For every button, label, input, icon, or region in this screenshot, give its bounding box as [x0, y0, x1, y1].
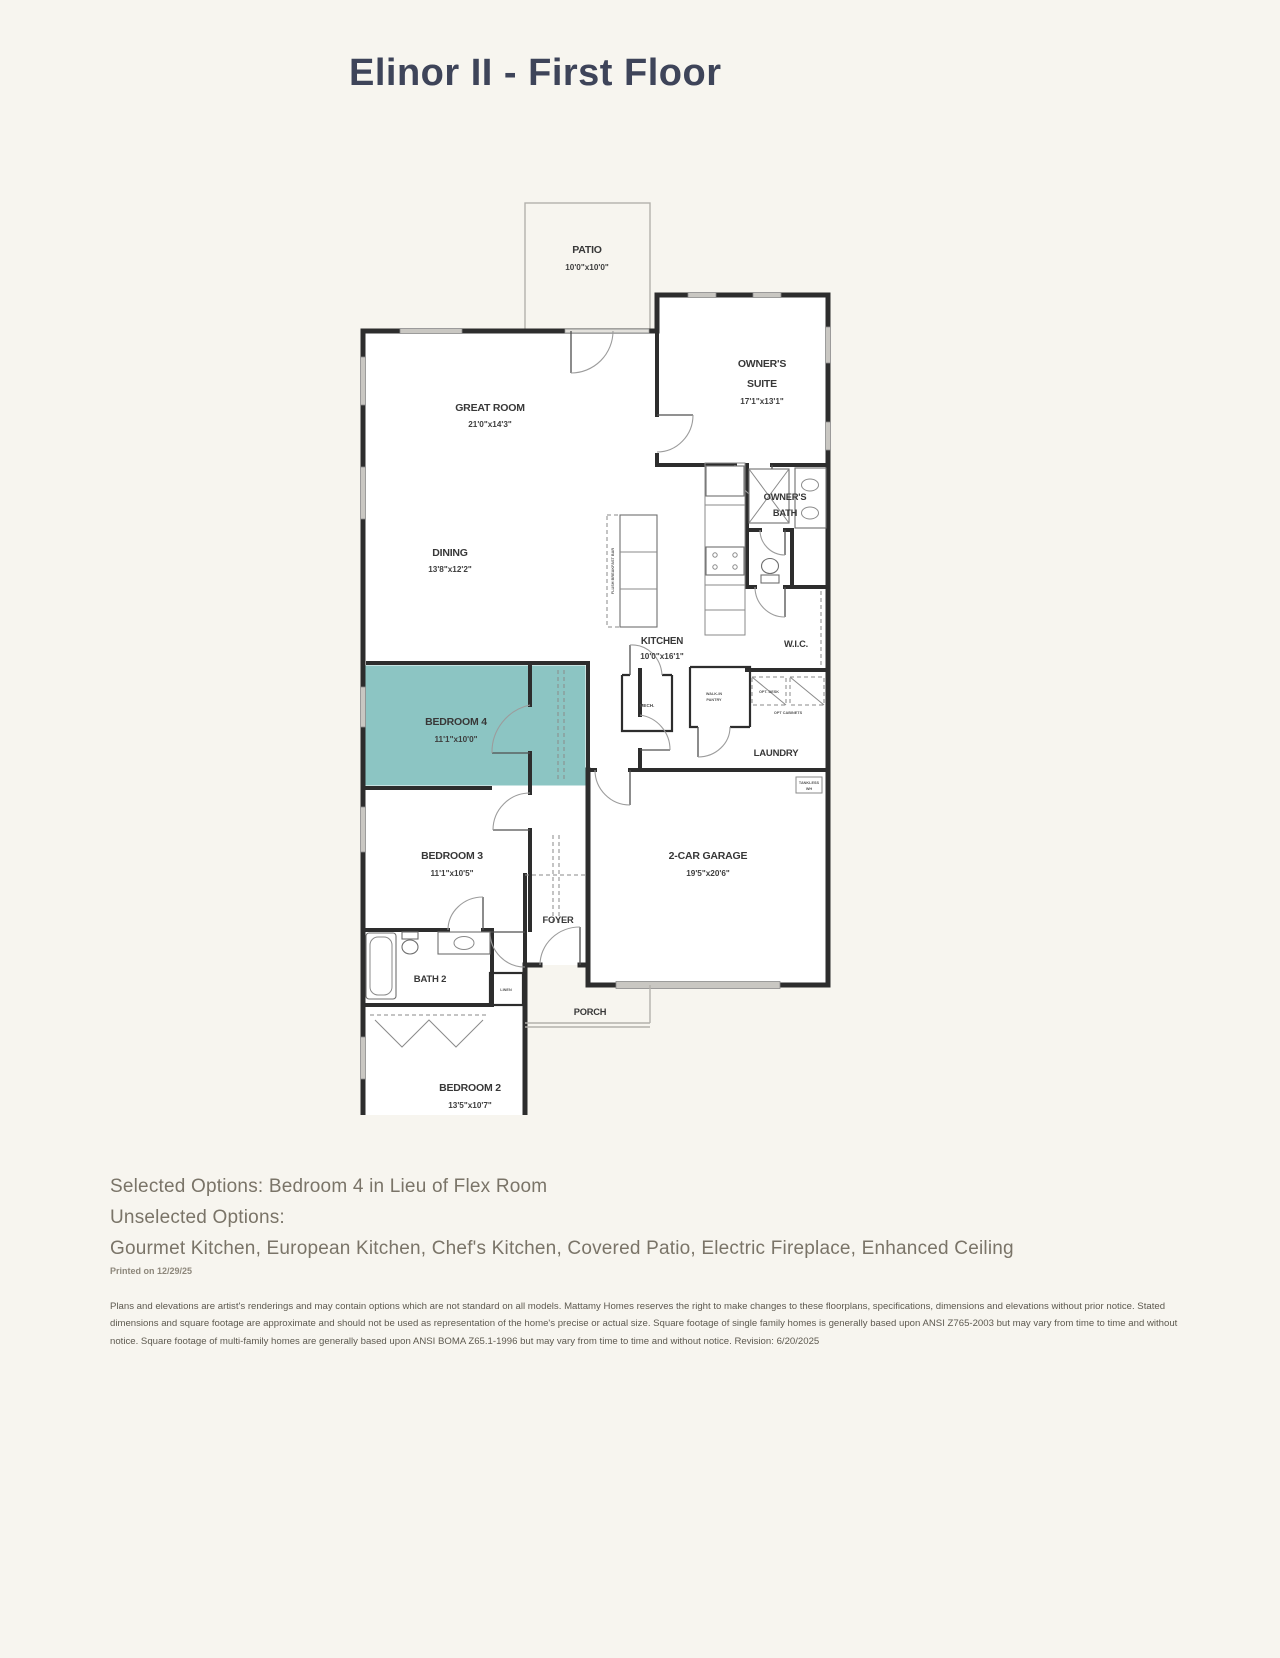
room-patio: PATIO 10'0"x10'0" — [525, 203, 650, 331]
pantry-label-2: PANTRY — [706, 698, 722, 702]
bedroom2-label: BEDROOM 2 — [439, 1082, 501, 1094]
owners-bath-label-1: OWNER'S — [764, 492, 807, 502]
refrigerator — [706, 466, 744, 496]
great-room-label: GREAT ROOM — [455, 402, 525, 414]
bedroom4-dims: 11'1"x10'0" — [434, 735, 477, 744]
printed-date: Printed on 12/29/25 — [110, 1266, 192, 1276]
selected-options-text: Selected Options: Bedroom 4 in Lieu of F… — [110, 1176, 547, 1198]
toilet-tank — [761, 575, 779, 583]
bedroom4-label: BEDROOM 4 — [425, 716, 487, 728]
unselected-options-heading: Unselected Options: — [110, 1207, 285, 1229]
disclaimer-text: Plans and elevations are artist's render… — [110, 1298, 1188, 1350]
bedroom2-dims: 13'5"x10'7" — [448, 1101, 492, 1110]
garage-door — [616, 982, 780, 989]
bath2-label: BATH 2 — [414, 974, 446, 985]
patio-dims: 10'0"x10'0" — [565, 263, 609, 272]
breakfast-bar-label: FLUSH BREAKFAST BAR — [611, 548, 615, 594]
vanity2 — [438, 932, 490, 954]
garage-dims: 19'5"x20'6" — [686, 869, 730, 878]
owners-suite-dims: 17'1"x13'1" — [740, 397, 784, 406]
great-room-dims: 21'0"x14'3" — [468, 420, 512, 429]
floor-plan: PATIO 10'0"x10'0" — [340, 175, 845, 1115]
wic-label: W.I.C. — [784, 639, 808, 649]
pantry-label-1: WALK-IN — [706, 692, 722, 696]
kitchen-label: KITCHEN — [641, 636, 683, 647]
patio-label: PATIO — [572, 244, 602, 256]
dining-label: DINING — [432, 547, 468, 559]
dining-dims: 13'8"x12'2" — [428, 565, 472, 574]
tankless-label-2: WH — [806, 787, 813, 791]
toilet2-tank — [402, 932, 418, 939]
page-title: Elinor II - First Floor — [349, 52, 722, 95]
bedroom3-label: BEDROOM 3 — [421, 850, 483, 862]
opt-cabinets-label: OPT CABINETS — [774, 711, 803, 715]
owners-bath-label-2: BATH — [773, 508, 798, 518]
owners-suite-label-2: SUITE — [747, 378, 777, 390]
unselected-options-list: Gourmet Kitchen, European Kitchen, Chef'… — [110, 1238, 1014, 1260]
owners-suite-label-1: OWNER'S — [738, 358, 787, 370]
garage-label: 2-CAR GARAGE — [669, 850, 748, 862]
porch-outline — [525, 985, 650, 1027]
foyer-label: FOYER — [542, 915, 574, 925]
kitchen-dims: 10'0"x16'1" — [640, 652, 684, 661]
bedroom3-dims: 11'1"x10'5" — [430, 869, 473, 878]
toilet — [762, 559, 779, 574]
mech-label: MECH. — [640, 703, 655, 708]
opt-desk-label: OPT. DESK — [759, 690, 779, 694]
toilet2 — [402, 940, 418, 954]
laundry-label: LAUNDRY — [754, 748, 800, 759]
porch-label: PORCH — [574, 1007, 607, 1017]
page: Elinor II - First Floor PATIO 10'0"x10'0… — [0, 0, 1280, 1658]
range — [706, 547, 744, 575]
tankless-label-1: TANKLESS — [799, 781, 820, 785]
linen-label: LINEN — [500, 988, 512, 992]
